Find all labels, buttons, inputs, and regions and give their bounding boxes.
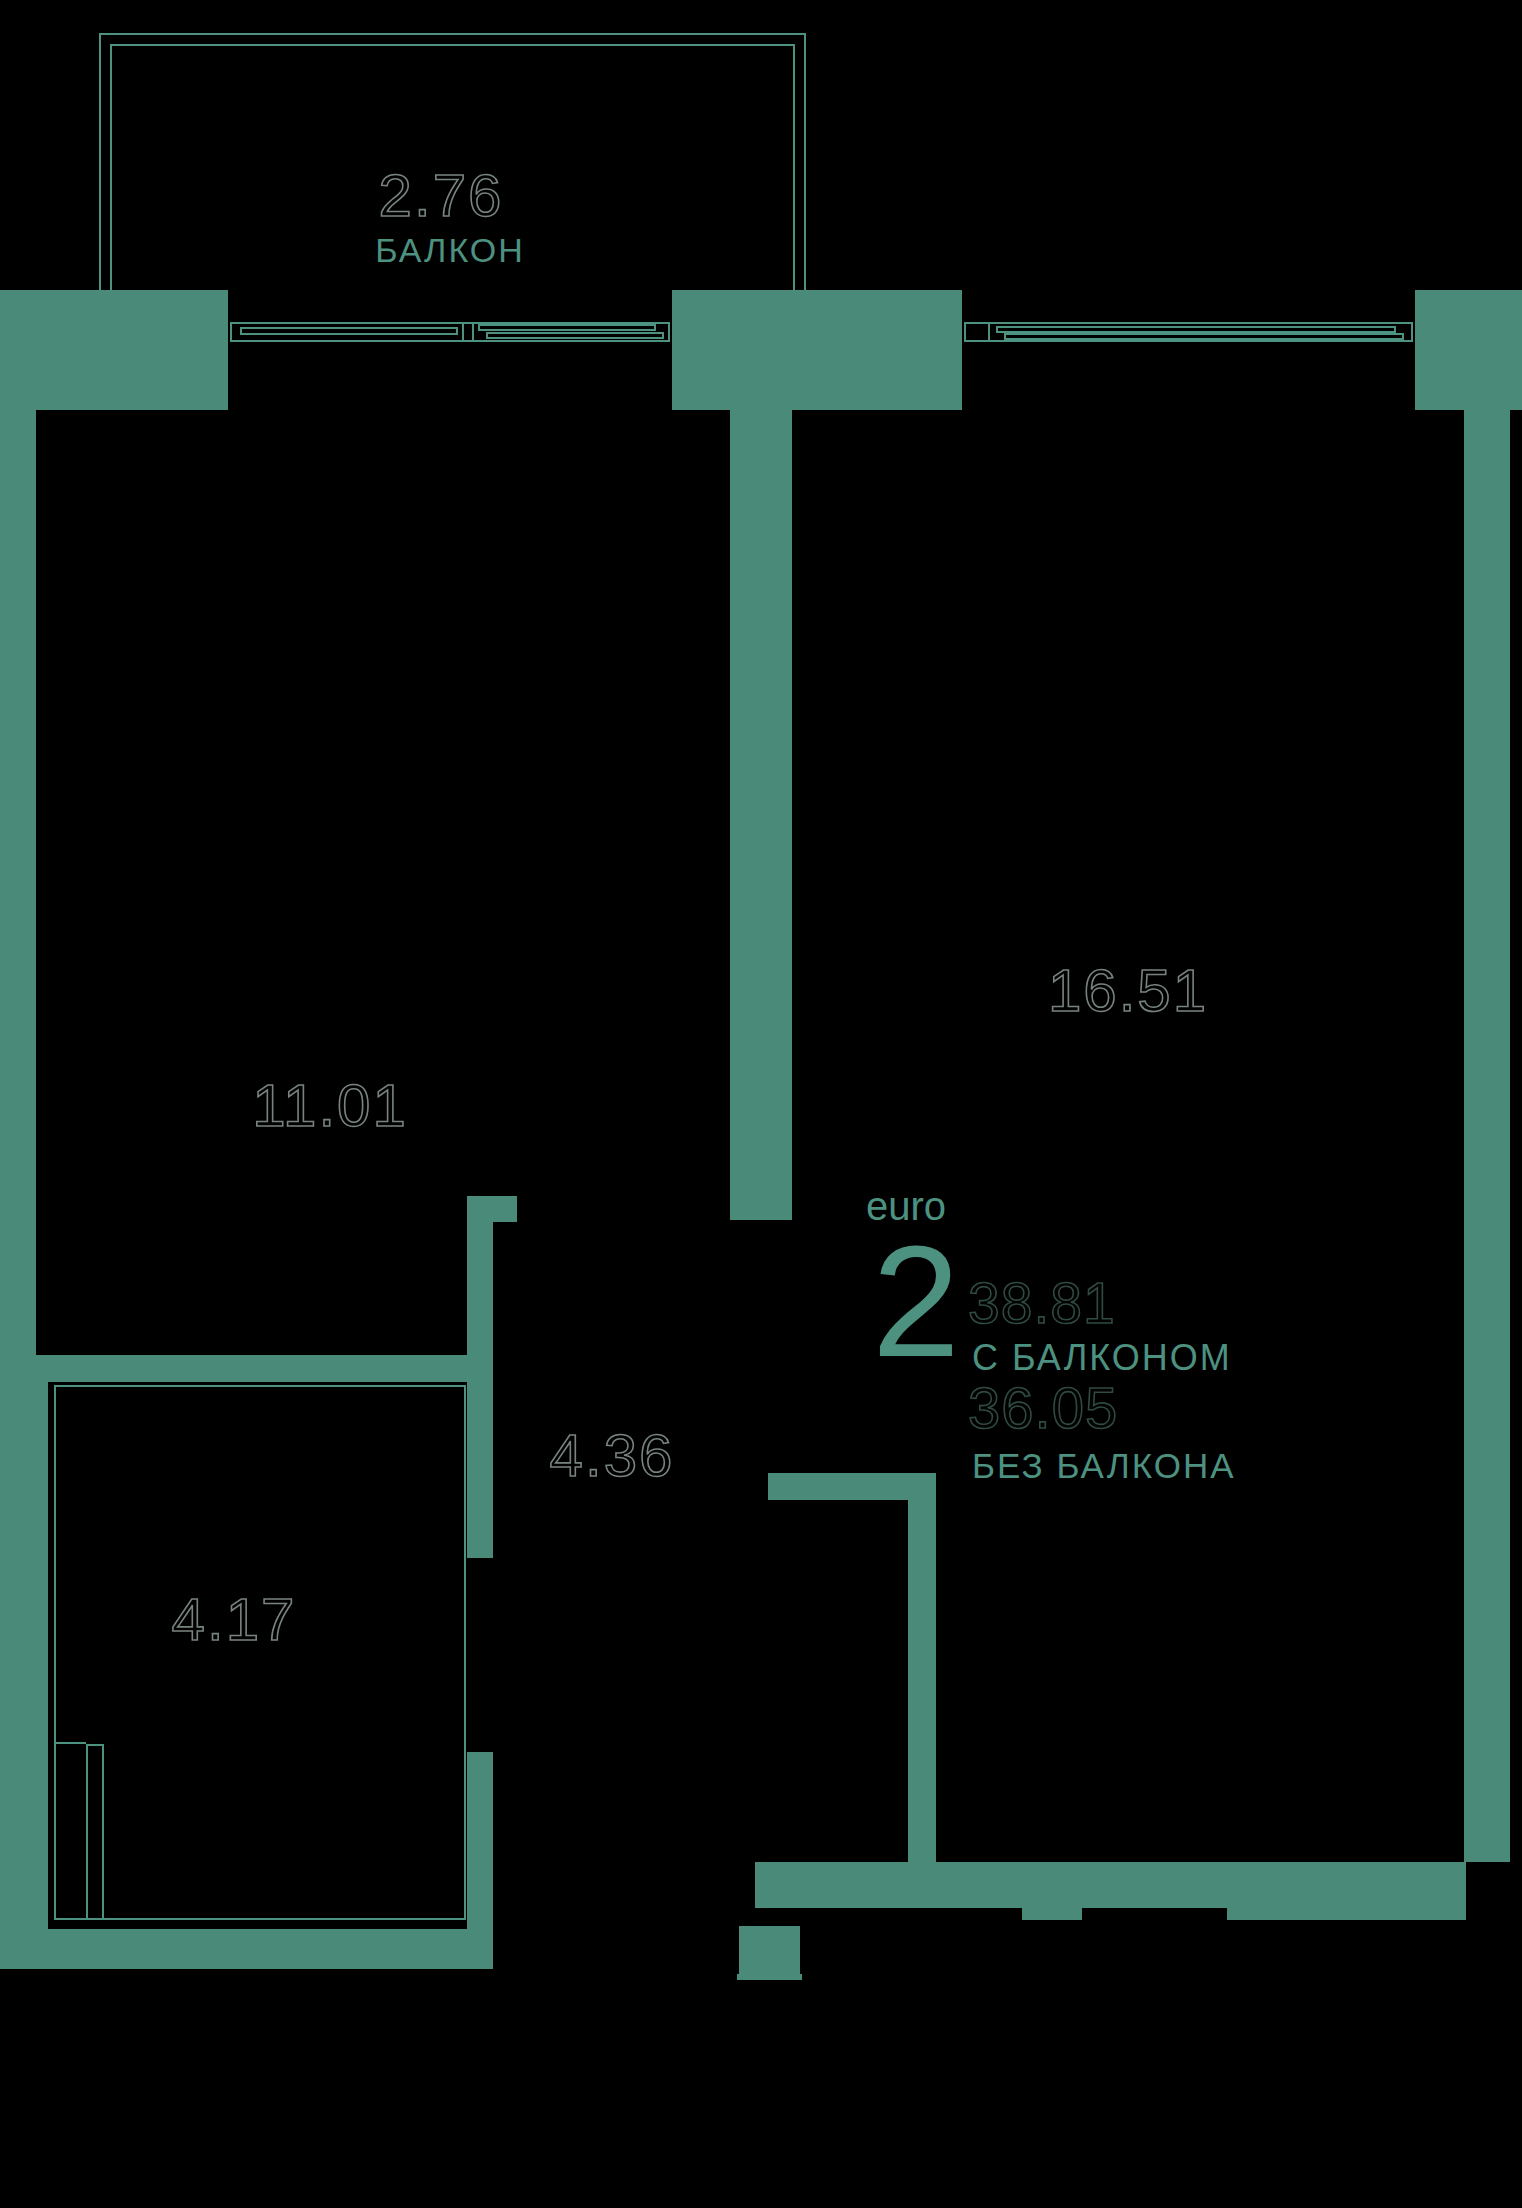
wall-hall-corner-v [908,1500,936,1862]
wall-room-divider [730,410,792,1220]
wall-room2-bottom [755,1862,1466,1908]
area-with-balcony-label: С БАЛКОНОМ [972,1337,1232,1379]
window1-frame-right [668,322,670,342]
wall-hall-corner-h [768,1473,936,1500]
wall-top-left [0,290,228,410]
bathroom-outline-top [54,1385,466,1387]
window2-sash1-top [996,326,1396,328]
wall-left-upper [0,410,36,1355]
window1-sash3-left [486,332,488,339]
window1-sash1-bottom [240,333,458,335]
wall-left-lower [0,1382,48,1929]
window1-sash1-top [240,327,458,329]
window1-sash2-left [478,324,480,331]
window2-sash2-top [1004,333,1404,335]
window2-divider [988,322,990,342]
window2-sash2-right [1402,333,1404,340]
balcony-outer-top [99,33,806,35]
area-without-balcony-label: БЕЗ БАЛКОНА [972,1446,1236,1486]
window2-sash2-bottom [1004,338,1404,340]
window1-divider-b [472,322,474,342]
window2-sash1-left [996,326,998,333]
wall-entry-jamb [739,1926,800,1980]
bathroom-area-label: 4.17 [172,1585,297,1654]
window2-sash2-left [1004,333,1006,340]
area-without-balcony-value: 36.05 [968,1374,1118,1441]
wall-corridor-lower [467,1752,493,1929]
balcony-area-label: 2.76 [379,161,504,230]
rooms-count-label: 2 [872,1222,960,1380]
room1-area-label: 11.01 [252,1071,408,1140]
wall-right [1464,410,1510,1862]
balcony-inner-left [110,44,112,290]
wall-room2-bottom-step-left [1022,1908,1082,1920]
window1-frame-bottom [230,340,670,342]
window1-sash2-bottom [478,329,656,331]
window1-sash3-bottom [486,337,664,339]
balcony-outer-right [804,33,806,290]
balcony-outer-left [99,33,101,290]
shaft-top [86,1744,104,1746]
window2-frame-left [964,322,966,342]
wall-room1-bathroom [0,1355,471,1382]
window1-sash3-top [486,332,664,334]
wall-corridor-upper [467,1222,493,1558]
window1-sash1-right [456,327,458,335]
window1-sash1-left [240,327,242,335]
window1-frame-left [230,322,232,342]
wall-top-right [1415,290,1522,410]
wall-bottom-left [0,1929,493,1969]
corridor-area-label: 4.36 [550,1421,675,1490]
window1-sash3-right [662,332,664,339]
area-with-balcony-value: 38.81 [968,1270,1116,1336]
wall-room2-bottom-step-right [1227,1908,1466,1920]
wall-corridor-stub [467,1196,517,1222]
window2-frame-bottom [964,340,1413,342]
window1-sash2-top [478,324,656,326]
balcony-inner-right [793,44,795,290]
window2-frame-top [964,322,1413,324]
bathroom-outline-bottom [54,1918,466,1920]
wall-entry-lip [737,1974,802,1980]
shaft-connector [56,1742,86,1744]
window1-sash2-right [654,324,656,331]
room2-area-label: 16.51 [1048,956,1208,1025]
wall-top-middle [672,290,962,410]
window2-sash1-right [1394,326,1396,333]
bathroom-outline-right [464,1385,466,1920]
bathroom-outline-left [54,1385,56,1920]
balcony-name-label: БАЛКОН [375,231,525,270]
window1-divider-a [462,322,464,342]
shaft-right [102,1744,104,1920]
balcony-inner-top [110,44,795,46]
window2-frame-right [1411,322,1413,342]
shaft-left [86,1744,88,1920]
floor-plan: 2.76 БАЛКОН 11.01 16.51 4.36 4.17 euro 2… [0,0,1522,2208]
